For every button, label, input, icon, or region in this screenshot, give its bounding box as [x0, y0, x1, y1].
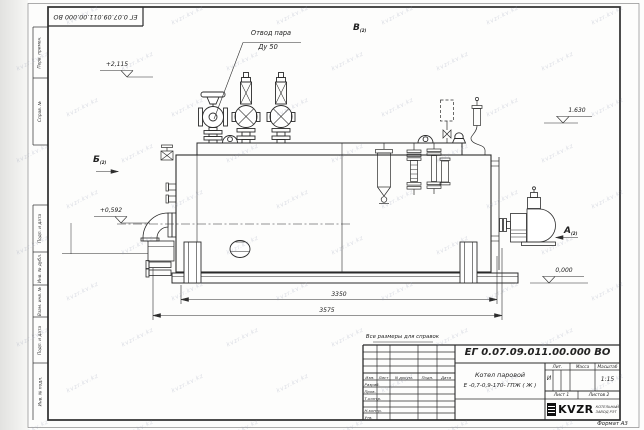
mass-header: Масса — [570, 364, 595, 369]
safety-valve-2 — [267, 73, 295, 144]
eyebolt — [453, 133, 466, 143]
sheet-number: Лист 1 — [545, 393, 578, 398]
level-gauges — [407, 143, 450, 195]
view-marker-a: А(2) — [564, 226, 577, 236]
kvzr-logo-icon — [547, 403, 556, 416]
reference-note: Все размеры для справок — [355, 334, 450, 340]
kvzr-logo-caption: КОТЕЛЬНЫЙ ЗАВОД РЭТ — [596, 405, 619, 413]
front-nozzles — [161, 145, 176, 203]
row-tkontr: Т.контр. — [365, 396, 382, 401]
frame-label-podp-data-2: Подп. и дата — [33, 317, 48, 363]
rotated-designation: ЕГ 0.07.09.011.00.000 ВО — [48, 8, 143, 26]
manufacturer-logo: KVZR КОТЕЛЬНЫЙ ЗАВОД РЭТ — [547, 401, 619, 418]
steam-valve — [199, 92, 228, 143]
frame-label-vzam-inv: Взам. инв. № — [33, 285, 48, 317]
elevation-mid: +0,592 — [92, 207, 130, 214]
row-utv: Утв. — [365, 415, 373, 420]
col-data: Дата — [437, 375, 455, 380]
product-name-line2: Е -0,7-0,9-170- ГПЖ ( Ж ) — [456, 383, 544, 389]
sheets-total: Листов 2 — [578, 393, 620, 398]
col-list: Лист — [377, 375, 390, 380]
frame-label-sprav: Справ. № — [33, 78, 48, 145]
elevation-top: +2,115 — [98, 61, 136, 68]
steam-outlet-label-line1: Отвод пара — [240, 29, 302, 37]
steam-outlet-label-line2: Ду 50 — [240, 43, 296, 51]
lit-value: И — [545, 376, 553, 382]
product-name-line1: Котел паровой — [456, 371, 544, 379]
frame-label-perv-primen: Перв. примен. — [33, 27, 48, 78]
safety-valve — [232, 73, 260, 144]
col-podp: Подп. — [418, 375, 437, 380]
drawing-sheet: ЕГ 0.07.09.011.00.000 ВО Перв. примен. С… — [0, 0, 644, 430]
row-nkontr: Н.контр. — [365, 408, 382, 413]
support-legs — [184, 242, 477, 283]
manhole — [230, 241, 250, 258]
burner-elbow — [141, 213, 176, 277]
frame-label-inv-dubl: Инв. № дубл. — [33, 252, 48, 285]
boiler-drawing — [62, 73, 556, 284]
dimension-3350: 3350 — [319, 291, 359, 298]
dimension-3575: 3575 — [307, 307, 347, 314]
kvzr-logo-text: KVZR — [558, 403, 593, 416]
row-prov: Пров. — [365, 389, 376, 394]
view-marker-v: В(2) — [353, 23, 366, 33]
elevation-right: 1.630 — [560, 107, 594, 114]
col-izm: Изм. — [363, 375, 377, 380]
format-label: Формат А3 — [585, 421, 640, 427]
row-razrab: Разраб. — [365, 382, 380, 387]
scale-header: Масштаб — [595, 364, 620, 369]
frame-label-podp-data-1: Подп. и дата — [33, 205, 48, 252]
col-ndoc: N докум. — [390, 375, 418, 380]
lit-header: Лит. — [545, 364, 570, 369]
titleblock-designation: ЕГ 0.07.09.011.00.000 ВО — [457, 347, 618, 358]
view-marker-b: Б(2) — [93, 155, 106, 165]
water-column — [376, 143, 393, 204]
scale-value: 1:15 — [595, 376, 620, 383]
boiler-shell — [176, 143, 499, 272]
feed-pump — [500, 187, 556, 246]
elevation-zero: 0,000 — [546, 267, 582, 274]
frame-label-inv-podl: Инв. № подл. — [33, 363, 48, 420]
flue-projection — [441, 100, 454, 143]
rear-pipe — [471, 97, 485, 155]
